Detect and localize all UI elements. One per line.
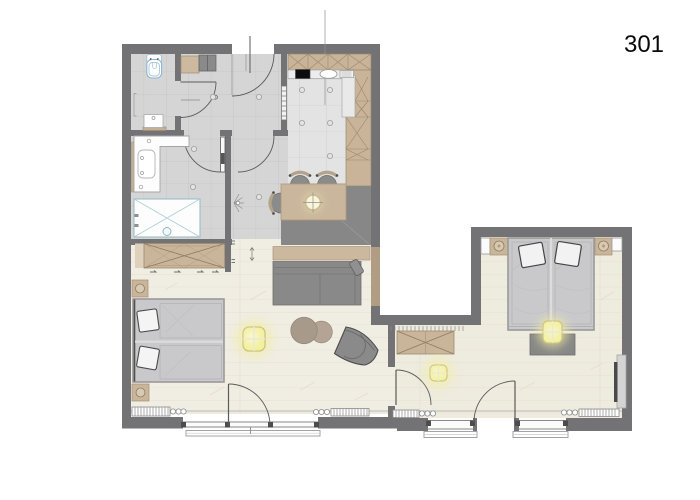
svg-text:301: 301 <box>624 31 664 58</box>
